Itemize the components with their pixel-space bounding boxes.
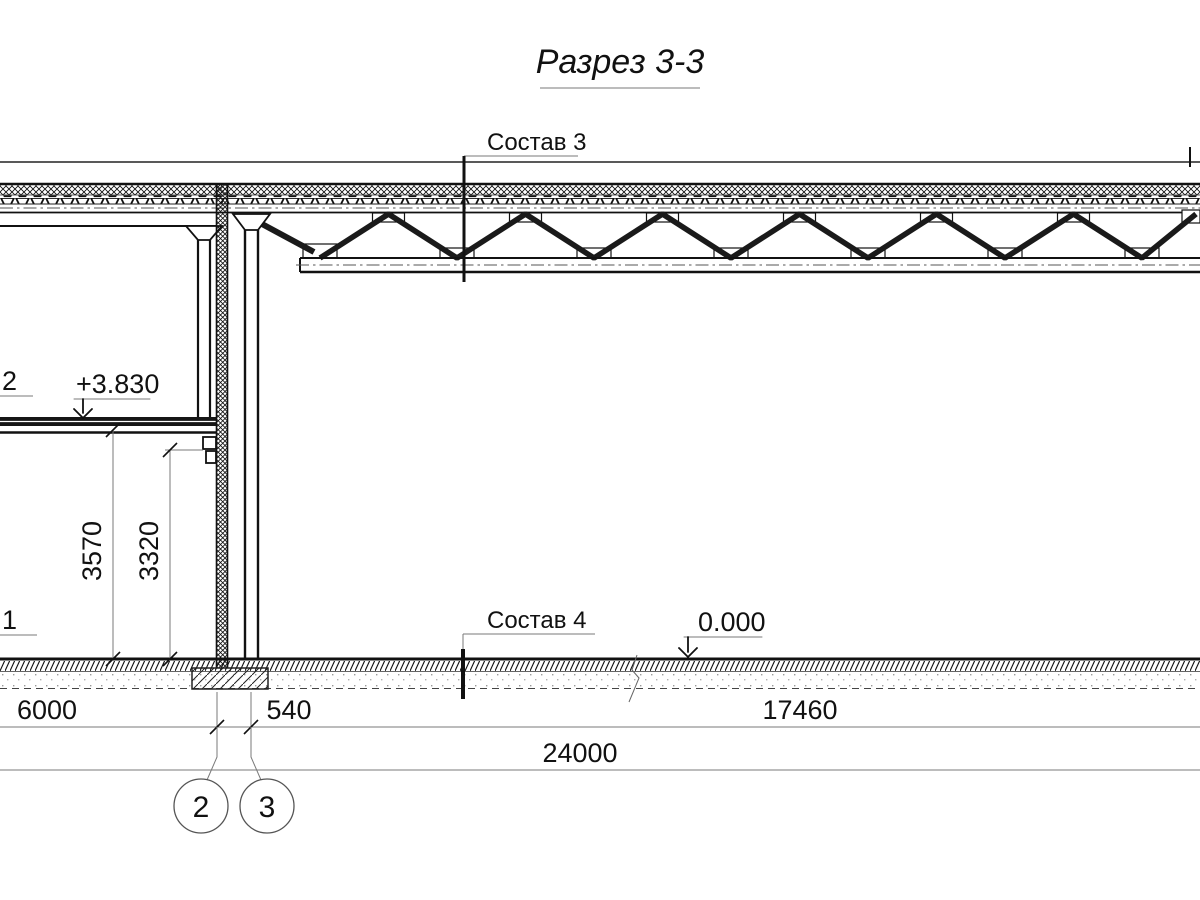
truss-web-diagonals — [320, 214, 1196, 258]
drawing-sheet: Состав 3 Состав 4 +3.830 0.000 3570 3320 — [0, 0, 1200, 900]
elevation-marks: +3.830 0.000 — [74, 369, 766, 657]
wall-hatch — [217, 184, 228, 668]
dim-span-hall: 17460 — [762, 695, 837, 725]
vertical-dimensions: 3570 3320 — [77, 423, 203, 666]
elevation-ground-value: 0.000 — [698, 607, 766, 637]
callout-lower: 1 — [2, 605, 17, 635]
roof-assembly — [0, 162, 1200, 213]
horizontal-dimensions: 6000 540 17460 24000 — [0, 692, 1200, 770]
wall-corbel-upper — [203, 437, 216, 449]
foundation-block — [192, 668, 268, 689]
floor-base-layer — [0, 672, 1200, 688]
floor-screed-hatch — [0, 661, 1200, 671]
floor-composition-label: Состав 4 — [487, 607, 587, 634]
dim-total: 24000 — [542, 738, 617, 768]
ground-floor-slab — [0, 655, 1200, 702]
elevation-upper-arrow — [74, 409, 83, 418]
elevation-ground-arrow — [679, 648, 688, 657]
callout-upper: 2 — [2, 366, 17, 396]
dim-height-floor: 3570 — [77, 521, 107, 581]
dim-span-left: 6000 — [17, 695, 77, 725]
roof-composition-label: Состав 3 — [487, 129, 587, 156]
truss-support-brace — [262, 224, 314, 252]
steel-truss — [262, 147, 1200, 272]
section-drawing: Состав 3 Состав 4 +3.830 0.000 3570 3320 — [0, 0, 1200, 900]
title-block: Разрез 3-3 — [536, 43, 705, 88]
grid-axes: 2 3 — [174, 727, 294, 833]
masonry-wall — [217, 184, 228, 668]
elevation-upper-value: +3.830 — [76, 369, 159, 399]
wall-corbel-lower — [206, 451, 216, 463]
hall-column — [233, 214, 270, 659]
callouts: 2 1 — [0, 366, 37, 635]
dim-height-clear: 3320 — [134, 521, 164, 581]
roof-insulation-hatch — [0, 186, 1200, 196]
roof-profiled-deck — [0, 196, 1200, 205]
drawing-title: Разрез 3-3 — [536, 43, 705, 81]
axis-number-left: 2 — [193, 791, 210, 824]
annex-structure — [0, 226, 222, 463]
dim-span-wall: 540 — [266, 695, 311, 725]
axis-number-right: 3 — [259, 791, 276, 824]
